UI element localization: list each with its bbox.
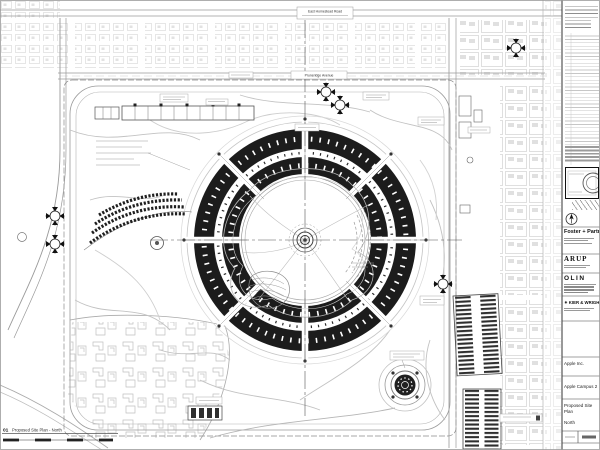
apartment-complex [68, 322, 232, 438]
drawing-sheet: East Homestead Road Pruneridge Avenue [0, 0, 600, 450]
parking-structure-north [453, 294, 502, 376]
client-name: Apple Inc. [564, 361, 599, 367]
annotation-notes [96, 141, 190, 170]
keynote-list [565, 33, 599, 145]
scale-bar [3, 439, 113, 442]
general-notes-block-2 [565, 20, 591, 30]
north-parking-canopy [95, 104, 254, 121]
sheet-name-line-2: Plan [564, 409, 599, 415]
key-plan-thumbnail [565, 167, 599, 199]
keynote-list-highlighted [565, 146, 599, 163]
transit-center [18, 194, 193, 250]
architect-name: Foster + Partners [564, 229, 599, 236]
drawing-number: 01 [3, 428, 9, 434]
consultant-kier-block: ✷ KIER & WRIGHT [564, 299, 599, 320]
architect-block: Foster + Partners [564, 229, 599, 252]
project-name: Apple Campus 2 [564, 384, 599, 390]
offsite-neighborhoods [0, 0, 561, 450]
pruneridge-avenue-label: Pruneridge Avenue [305, 74, 334, 78]
north-arrow-icon [566, 214, 577, 225]
consultant-arup: ARUP [564, 256, 599, 263]
east-edge-structures [459, 96, 482, 213]
parking-structure-south [463, 389, 501, 449]
callout-icon [45, 234, 65, 254]
key-plan-road-hatch [572, 200, 600, 210]
central-plant [188, 406, 222, 420]
key-plan-drawing [566, 168, 598, 198]
theater-pavilion [379, 359, 431, 411]
consultant-kier: KIER & WRIGHT [569, 299, 599, 306]
sheet-name-block: Proposed Site Plan North [564, 403, 599, 430]
general-notes-block [565, 6, 598, 19]
sheet-name-line-3: North [564, 420, 599, 426]
callout-icon [316, 82, 336, 102]
consultant-arup-block: ARUP [564, 256, 599, 272]
kier-leaf-icon: ✷ [564, 300, 568, 306]
drawing-title: Proposed Site Plan - North [12, 428, 62, 433]
callout-icon [330, 95, 350, 115]
consultant-olin-block: OLIN [564, 275, 599, 295]
site-plan-drawing: East Homestead Road Pruneridge Avenue [0, 0, 600, 450]
consultant-olin: OLIN [564, 275, 599, 282]
callout-icon [45, 206, 65, 226]
homestead-road-label: East Homestead Road [308, 10, 342, 14]
